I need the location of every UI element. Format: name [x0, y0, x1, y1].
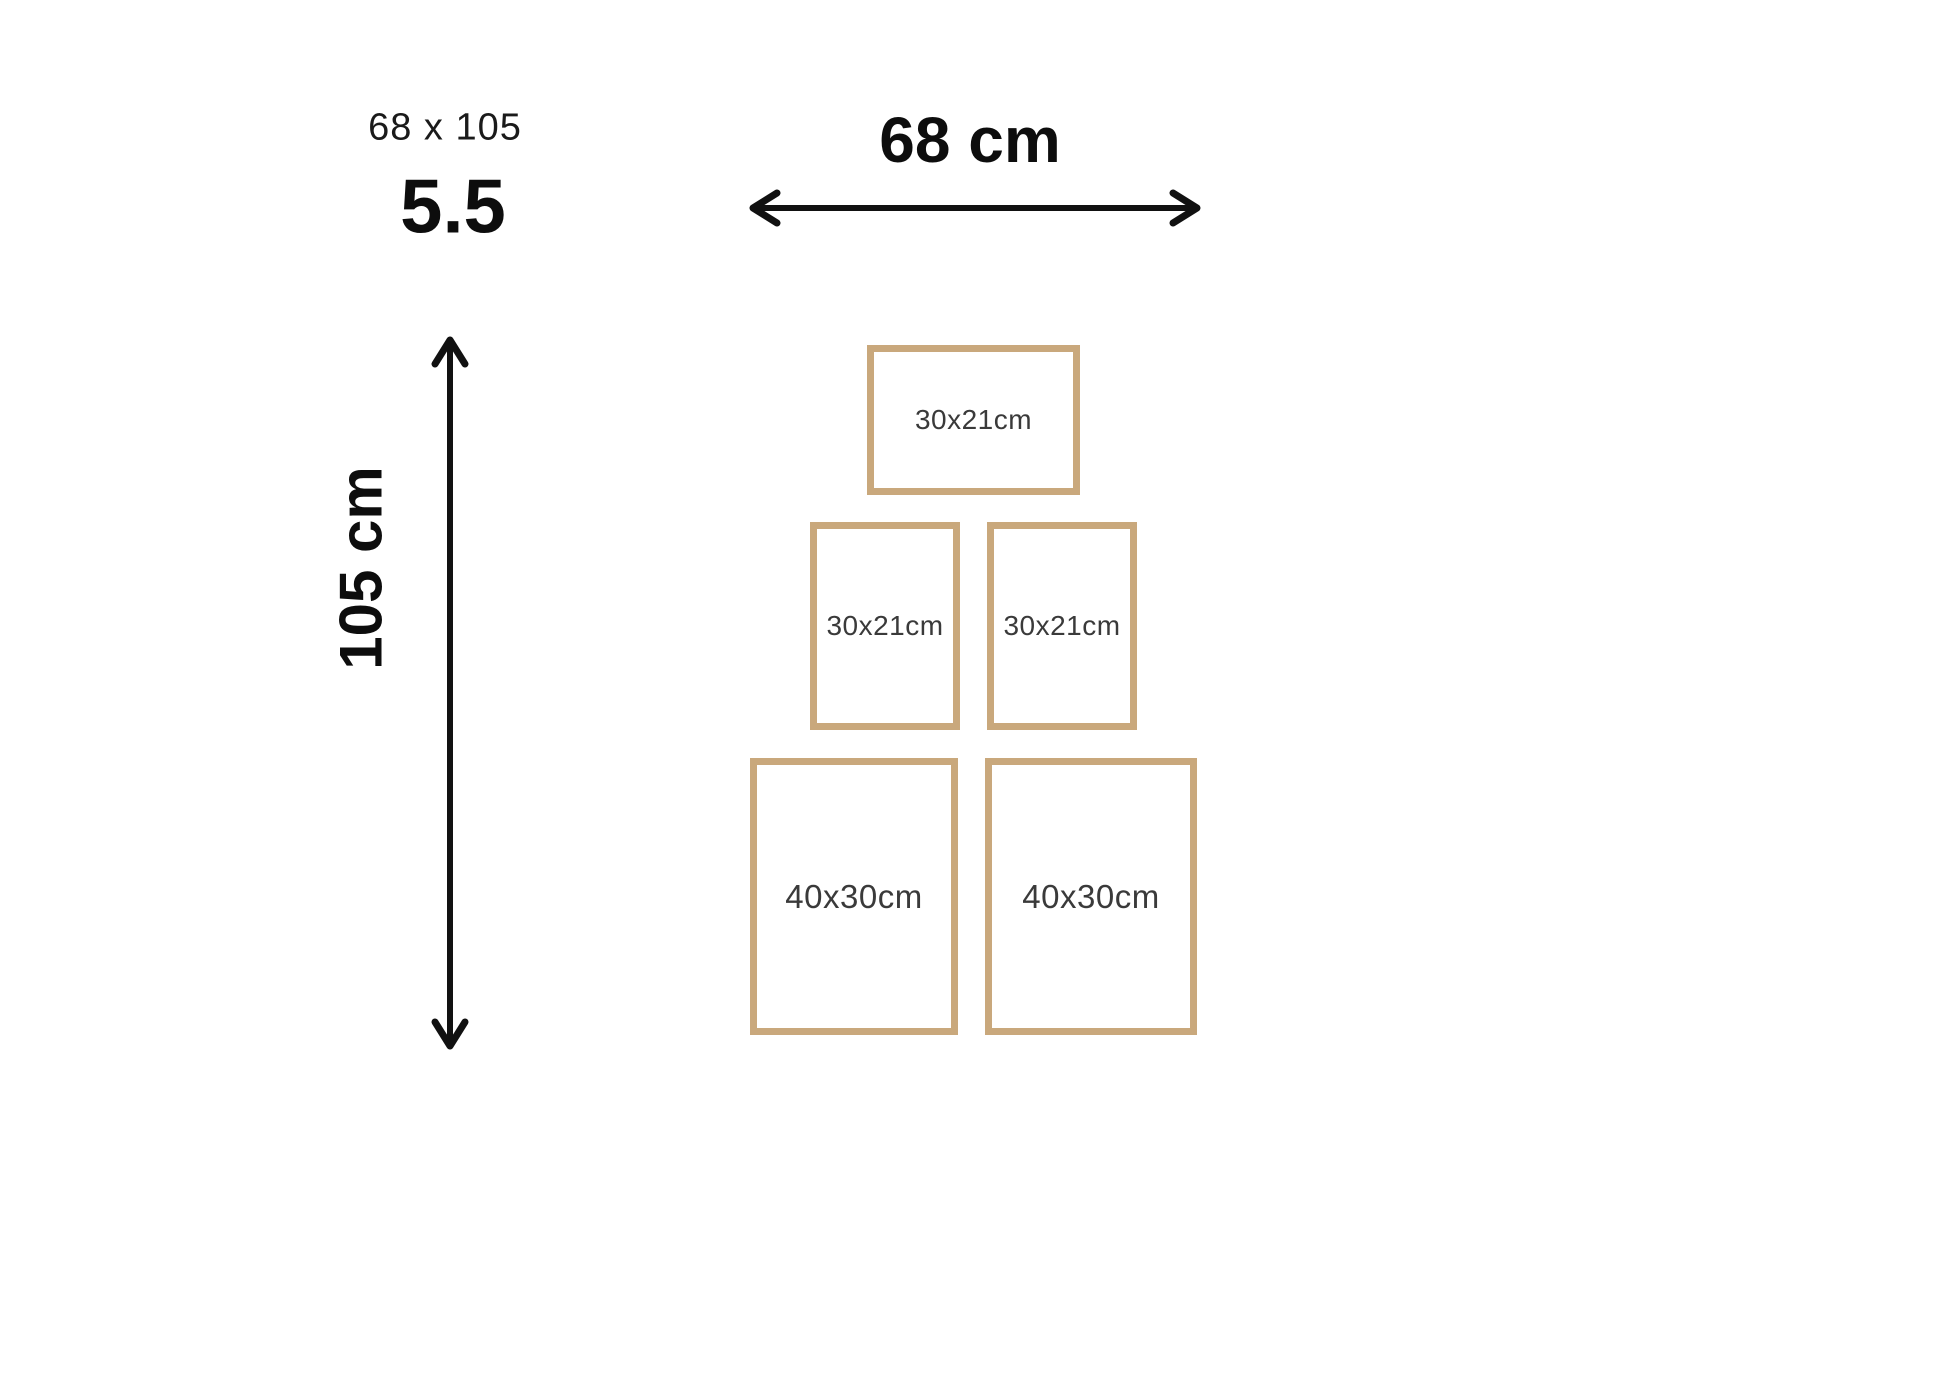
- frame-middle-left: 30x21cm: [810, 522, 960, 730]
- frame-size-label: 40x30cm: [785, 878, 922, 916]
- frame-middle-right: 30x21cm: [987, 522, 1137, 730]
- size-code-label: 68 x 105: [368, 107, 522, 150]
- width-dimension-label: 68 cm: [879, 103, 1060, 177]
- gallery-wall-dimension-diagram: 68 x 105 5.5 68 cm 105 cm 30x21cm 30x21c…: [0, 0, 1946, 1377]
- width-double-arrow-icon: [748, 186, 1202, 230]
- frame-size-label: 30x21cm: [826, 610, 943, 642]
- frame-size-label: 30x21cm: [1003, 610, 1120, 642]
- frame-size-label: 40x30cm: [1022, 878, 1159, 916]
- frame-top-center: 30x21cm: [867, 345, 1080, 495]
- frame-bottom-left: 40x30cm: [750, 758, 958, 1035]
- frame-bottom-right: 40x30cm: [985, 758, 1197, 1035]
- height-double-arrow-icon: [428, 335, 472, 1051]
- height-dimension-label: 105 cm: [327, 466, 396, 670]
- series-number-label: 5.5: [400, 164, 506, 251]
- frame-size-label: 30x21cm: [915, 404, 1032, 436]
